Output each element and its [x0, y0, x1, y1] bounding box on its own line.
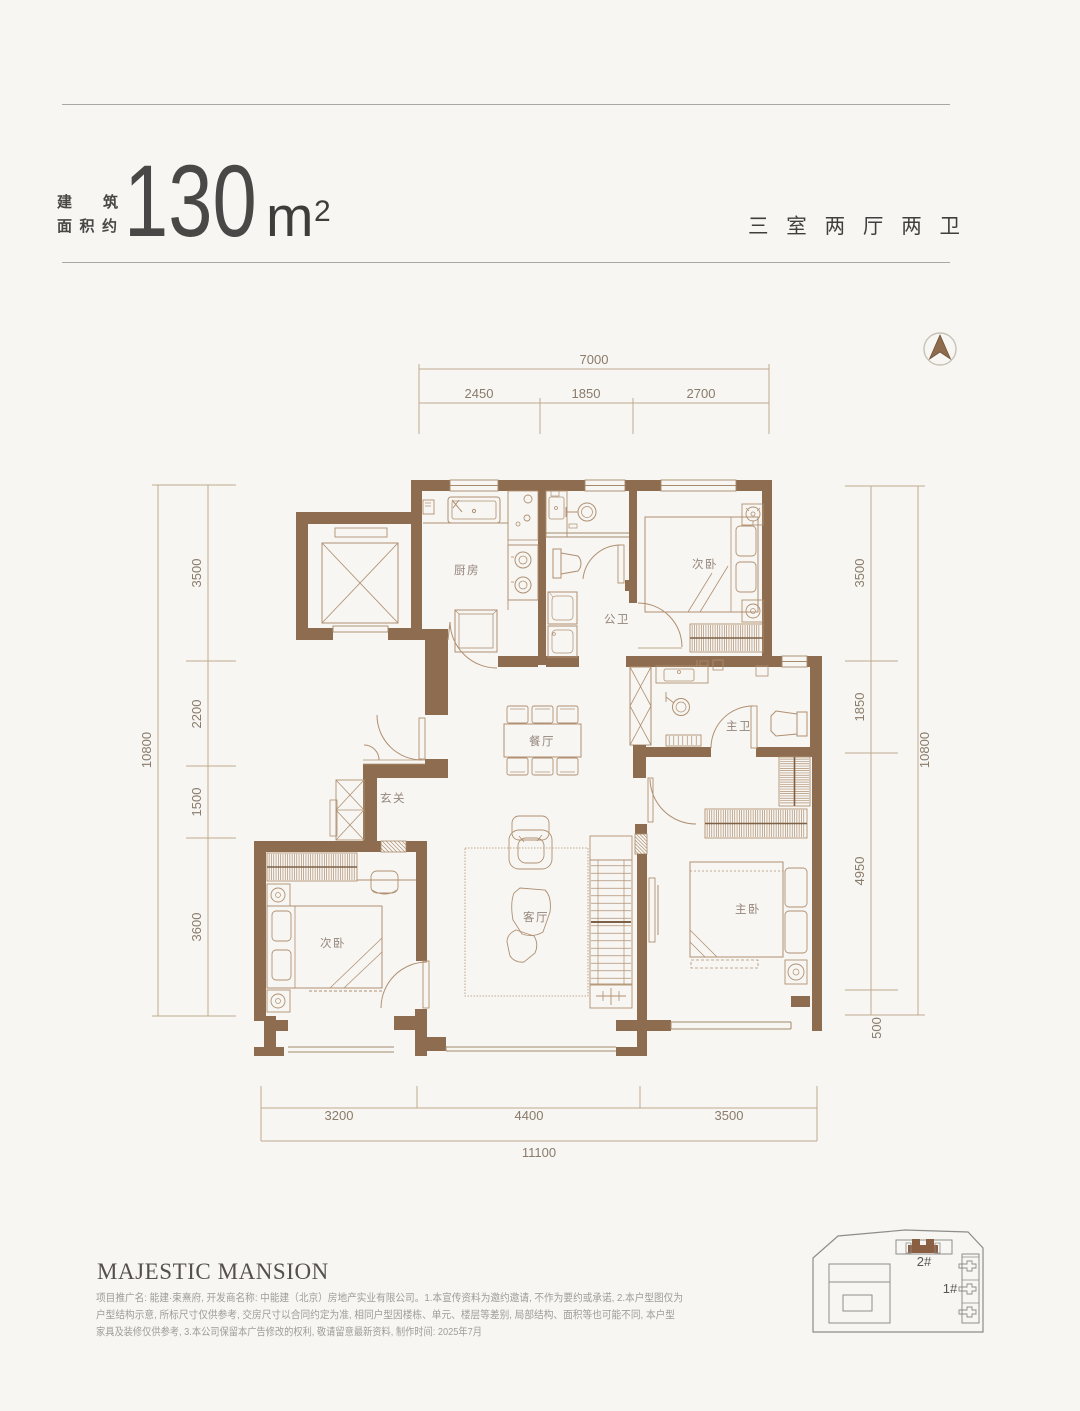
svg-text:户型结构示意, 所标尺寸仅供参考, 交房尺寸以合同约定为准,: 户型结构示意, 所标尺寸仅供参考, 交房尺寸以合同约定为准, 相同户型因楼栋、单… — [96, 1308, 675, 1321]
svg-text:3500: 3500 — [715, 1108, 744, 1123]
svg-text:次卧: 次卧 — [692, 557, 718, 571]
svg-text:次卧: 次卧 — [320, 936, 346, 950]
svg-text:公卫: 公卫 — [604, 613, 630, 626]
svg-text:1850: 1850 — [852, 693, 867, 722]
svg-text:10800: 10800 — [139, 732, 154, 768]
svg-text:家具及装修仅供参考, 3.本公司保留本广告修改的权利, 敬请: 家具及装修仅供参考, 3.本公司保留本广告修改的权利, 敬请留意最新资料, 制作… — [96, 1325, 482, 1338]
svg-text:主卫: 主卫 — [726, 720, 752, 733]
svg-text:130: 130 — [124, 145, 257, 259]
svg-text:1500: 1500 — [189, 788, 204, 817]
svg-text:2: 2 — [314, 195, 331, 228]
svg-text:MAJESTIC MANSION: MAJESTIC MANSION — [97, 1259, 329, 1284]
svg-text:厨房: 厨房 — [454, 564, 480, 577]
svg-text:4400: 4400 — [515, 1108, 544, 1123]
svg-text:3200: 3200 — [325, 1108, 354, 1123]
svg-text:客厅: 客厅 — [523, 910, 549, 924]
svg-text:面积约: 面积约 — [57, 217, 125, 235]
svg-text:筑: 筑 — [102, 193, 118, 211]
svg-text:玄关: 玄关 — [380, 791, 406, 805]
svg-text:2450: 2450 — [465, 386, 494, 401]
svg-text:1#: 1# — [943, 1281, 958, 1296]
svg-text:2#: 2# — [917, 1254, 932, 1269]
svg-text:10800: 10800 — [917, 732, 932, 768]
svg-text:500: 500 — [869, 1017, 884, 1039]
svg-text:餐厅: 餐厅 — [529, 734, 555, 748]
svg-text:建: 建 — [57, 193, 73, 211]
svg-text:1850: 1850 — [572, 386, 601, 401]
svg-text:项目推广名: 能建·束熹府, 开发商名称: 中能建（北京）房: 项目推广名: 能建·束熹府, 开发商名称: 中能建（北京）房地产实业有限公司。1… — [96, 1291, 683, 1304]
svg-text:7000: 7000 — [580, 352, 609, 367]
svg-text:11100: 11100 — [522, 1145, 556, 1160]
svg-text:主卧: 主卧 — [735, 903, 761, 916]
svg-text:3600: 3600 — [189, 913, 204, 942]
svg-text:3500: 3500 — [852, 559, 867, 588]
svg-text:3500: 3500 — [189, 559, 204, 588]
svg-text:三室两厅两卫: 三室两厅两卫 — [748, 215, 978, 238]
svg-text:m: m — [266, 185, 313, 249]
svg-text:4950: 4950 — [852, 857, 867, 886]
svg-text:2700: 2700 — [687, 386, 716, 401]
svg-text:2200: 2200 — [189, 700, 204, 729]
